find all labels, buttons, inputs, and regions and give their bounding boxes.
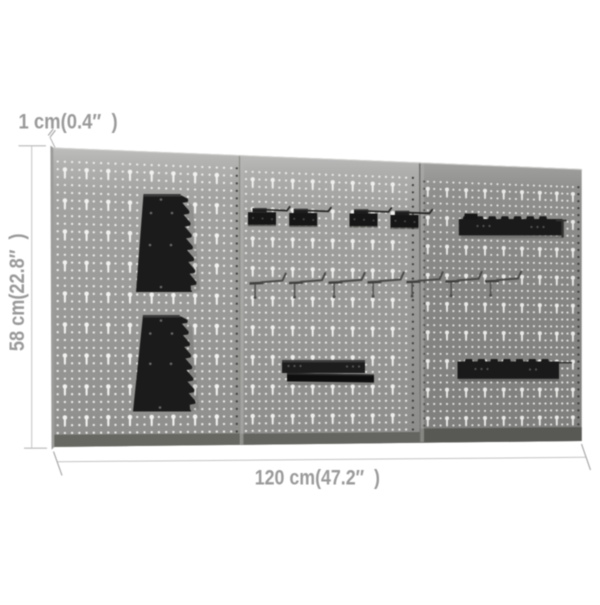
svg-text:1 cm(0.4″ ): 1 cm(0.4″ ) xyxy=(19,111,118,134)
svg-text:58 cm(22.8″ ): 58 cm(22.8″ ) xyxy=(6,233,29,351)
svg-text:120 cm(47.2″ ): 120 cm(47.2″ ) xyxy=(255,467,380,490)
